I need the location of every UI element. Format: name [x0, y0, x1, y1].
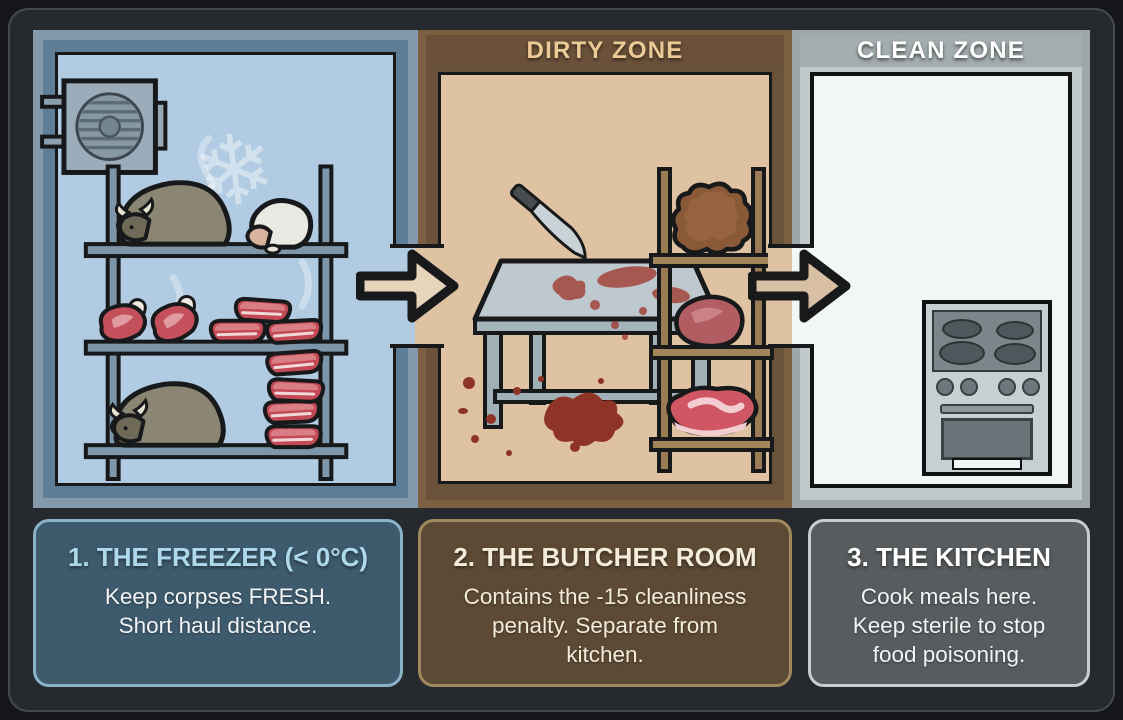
muffalo-corpse-icon [116, 183, 229, 244]
clean-zone-header: CLEAN ZONE [800, 35, 1082, 67]
freezer-card-title: 1. THE FREEZER (< 0°C) [48, 542, 388, 573]
oven-window [941, 418, 1033, 460]
knife-icon [507, 183, 594, 260]
muffalo-corpse-icon [110, 384, 223, 445]
kitchen-card-title: 3. THE KITCHEN [823, 542, 1075, 573]
oven-handle [940, 404, 1034, 414]
burner-icon [942, 319, 982, 339]
dirty-zone-header: DIRTY ZONE [426, 35, 784, 67]
butcher-card-title: 2. THE BUTCHER ROOM [433, 542, 777, 573]
clean-zone-label: CLEAN ZONE [857, 37, 1025, 65]
meat-chop-icon [149, 295, 200, 343]
freezer-art: ❄ [58, 55, 393, 483]
stove-knob [998, 378, 1016, 396]
raw-meat-icon [676, 297, 742, 346]
burner-icon [939, 341, 985, 365]
freezer-info-card: 1. THE FREEZER (< 0°C) Keep corpses FRES… [33, 519, 403, 687]
butcher-interior [438, 72, 772, 484]
freezer-interior: ❄ [55, 52, 396, 486]
butcher-info-card: 2. THE BUTCHER ROOM Contains the -15 cle… [418, 519, 792, 687]
cooler-unit-icon [42, 81, 165, 173]
infographic-stage: ❄ [0, 0, 1123, 720]
kitchen-info-card: 3. THE KITCHEN Cook meals here. Keep ste… [808, 519, 1090, 687]
stove-cooktop [932, 310, 1042, 372]
burner-icon [994, 343, 1036, 365]
freezer-card-body: Keep corpses FRESH. Short haul distance. [48, 583, 388, 641]
stove-knob [936, 378, 954, 396]
steak-stack-icon [265, 350, 324, 447]
steak-icon [669, 388, 757, 436]
burner-icon [996, 321, 1034, 340]
stove-knob [960, 378, 978, 396]
dirty-zone-label: DIRTY ZONE [527, 37, 684, 65]
stove-knob [1022, 378, 1040, 396]
butcher-card-body: Contains the -15 cleanliness penalty. Se… [433, 583, 777, 669]
leather-hide-icon [673, 184, 751, 253]
oven-drawer [952, 458, 1022, 470]
flow-arrow-icon [748, 238, 852, 334]
stove-icon [922, 300, 1052, 476]
butcher-room: DIRTY ZONE [418, 30, 792, 508]
kitchen-card-body: Cook meals here. Keep sterile to stop fo… [823, 583, 1075, 669]
flow-arrow-icon [356, 238, 460, 334]
butcher-art [441, 75, 769, 481]
